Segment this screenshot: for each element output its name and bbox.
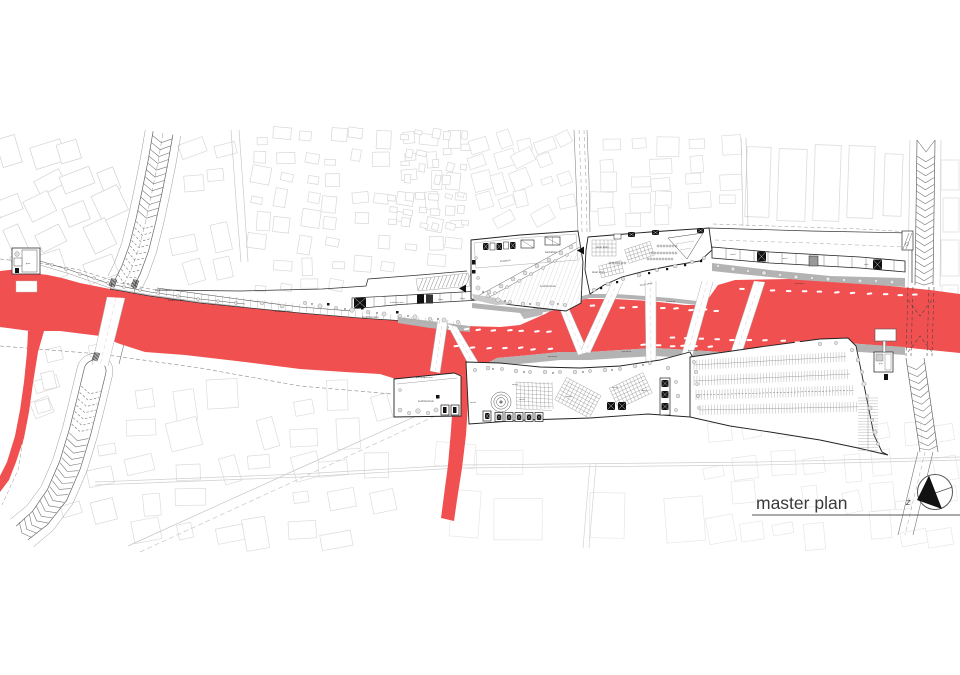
- svg-text:pontoon: pontoon: [424, 376, 433, 379]
- svg-text:shop: shop: [460, 298, 465, 300]
- svg-text:ż: ż: [905, 497, 911, 507]
- svg-text:gate: gate: [26, 262, 31, 265]
- svg-text:pontoon: pontoon: [688, 349, 698, 352]
- svg-text:retail: retail: [782, 257, 788, 260]
- svg-text:pontoon: pontoon: [548, 355, 558, 358]
- svg-text:retail: retail: [470, 401, 477, 404]
- svg-text:shop: shop: [438, 299, 443, 301]
- svg-text:multifunction: multifunction: [168, 299, 185, 302]
- svg-text:pontoon: pontoon: [666, 300, 676, 303]
- svg-text:retail: retail: [730, 253, 736, 256]
- svg-text:master plan: master plan: [756, 493, 847, 513]
- svg-text:multifunction: multifunction: [275, 310, 292, 313]
- svg-text:multifunction: multifunction: [418, 400, 435, 403]
- svg-text:pontoon: pontoon: [795, 282, 805, 285]
- svg-text:retail: retail: [512, 383, 519, 386]
- svg-text:local shop: local shop: [592, 272, 605, 274]
- svg-text:pontoon: pontoon: [622, 350, 632, 353]
- svg-text:cafe: cafe: [864, 264, 869, 266]
- svg-text:pier: pier: [879, 362, 883, 365]
- svg-text:multifunction: multifunction: [362, 316, 379, 319]
- svg-text:multifunction: multifunction: [390, 301, 404, 304]
